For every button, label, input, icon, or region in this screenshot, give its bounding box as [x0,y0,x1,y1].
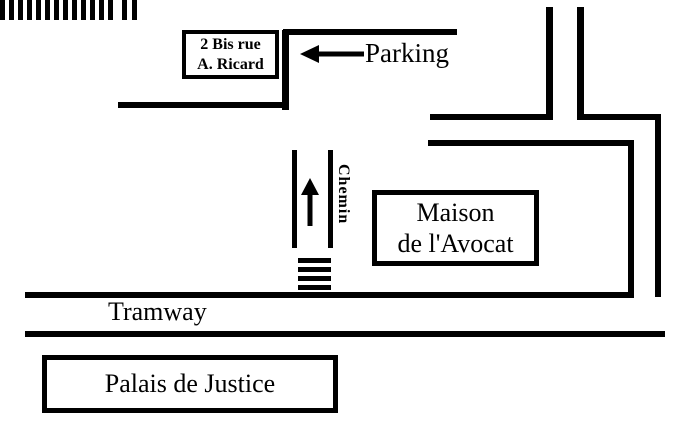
road-upper-street-left [546,7,553,120]
parking-hatch-bar [63,0,68,20]
chemin-label: Chemin [334,164,352,224]
crosswalk [298,258,331,294]
parking-hatch-bar [45,0,50,20]
crosswalk-bar [298,267,331,272]
maison-box: Maison de l'Avocat [372,190,539,266]
parking-hatch-bar [99,0,104,20]
parking-hatch-bar [27,0,32,20]
road-mid-horizontal-right [577,114,661,120]
address-line1: 2 Bis rue [200,35,260,55]
parking-hatch-extra [122,0,142,20]
palais-label: Palais de Justice [105,369,275,399]
maison-line1: Maison [417,197,495,228]
road-right-outer-vertical [655,114,661,297]
road-address-corner-horizontal [118,102,289,108]
parking-hatch-bar [122,0,127,20]
parking-hatch [0,0,691,20]
parking-hatch-bar [9,0,14,20]
parking-hatch-main [0,0,117,20]
road-upper-street-right [577,7,584,120]
parking-hatch-bar [90,0,95,20]
address-line2: A. Ricard [197,55,264,75]
address-box: 2 Bis rue A. Ricard [182,30,279,79]
road-top-horizontal [283,29,457,35]
parking-arrow-icon [300,45,364,63]
road-mid-lower-horizontal [428,140,634,146]
parking-hatch-bar [108,0,113,20]
tramway-bottom-line [25,331,665,337]
parking-hatch-bar [18,0,23,20]
chemin-left-line [292,150,297,248]
chemin-arrow-icon [301,178,319,226]
map-canvas: 2 Bis rue A. Ricard Parking Chemin Maiso… [0,0,691,439]
palais-box: Palais de Justice [42,355,338,413]
maison-line2: de l'Avocat [397,228,513,259]
tramway-label: Tramway [108,297,207,327]
road-mid-horizontal-left [430,114,553,120]
parking-hatch-bar [54,0,59,20]
parking-hatch-bar [36,0,41,20]
road-right-inner-vertical [628,140,634,293]
parking-label: Parking [365,38,449,69]
crosswalk-bar [298,285,331,290]
crosswalk-bar [298,258,331,263]
parking-hatch-bar [132,0,137,20]
road-address-vertical [282,30,289,110]
parking-hatch-bar [72,0,77,20]
crosswalk-bar [298,276,331,281]
parking-hatch-bar [81,0,86,20]
chemin-right-line [328,150,333,248]
parking-hatch-bar [0,0,5,20]
